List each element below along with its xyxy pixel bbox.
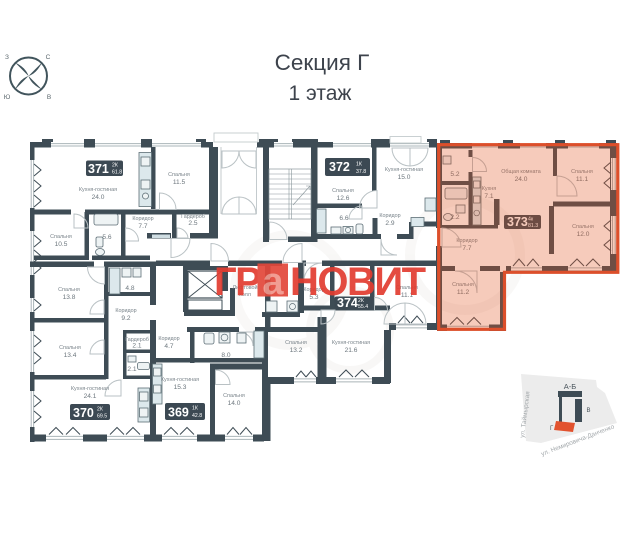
svg-text:14.0: 14.0 [228, 400, 241, 407]
svg-text:2.1: 2.1 [127, 366, 136, 373]
svg-text:13.8: 13.8 [63, 294, 76, 301]
svg-text:Спальня: Спальня [59, 345, 81, 351]
svg-text:Коридор: Коридор [132, 216, 153, 222]
svg-text:6.6: 6.6 [339, 215, 348, 222]
svg-text:15.0: 15.0 [398, 174, 411, 181]
svg-text:а: а [262, 261, 284, 303]
svg-text:НОВИТ: НОВИТ [290, 260, 426, 304]
svg-text:13.2: 13.2 [290, 347, 303, 354]
svg-text:Спальня: Спальня [223, 393, 245, 399]
svg-text:370: 370 [73, 406, 94, 420]
svg-text:11.5: 11.5 [173, 179, 186, 186]
svg-text:8.0: 8.0 [221, 352, 230, 359]
svg-text:12.6: 12.6 [337, 195, 350, 202]
svg-text:5.6: 5.6 [102, 234, 111, 241]
svg-text:В: В [587, 408, 591, 414]
svg-text:З: З [5, 54, 9, 61]
svg-text:2К: 2К [97, 407, 103, 413]
svg-text:15.3: 15.3 [174, 384, 187, 391]
svg-text:Коридор: Коридор [115, 308, 136, 314]
svg-text:С: С [46, 54, 51, 61]
svg-text:7.7: 7.7 [138, 223, 147, 230]
svg-text:2.5: 2.5 [188, 220, 197, 227]
svg-text:55.4: 55.4 [358, 304, 368, 310]
svg-text:А-Б: А-Б [564, 382, 577, 391]
svg-text:1 этаж: 1 этаж [289, 82, 352, 105]
svg-text:69.5: 69.5 [97, 414, 107, 420]
svg-text:371: 371 [88, 162, 109, 176]
svg-text:24.1: 24.1 [84, 393, 97, 400]
svg-text:372: 372 [329, 160, 350, 174]
svg-text:Кухня-гостиная: Кухня-гостиная [332, 340, 370, 346]
svg-text:Спальня: Спальня [50, 234, 72, 240]
svg-text:Ю: Ю [4, 94, 11, 101]
svg-text:13.4: 13.4 [64, 352, 77, 359]
svg-text:Кухня-гостиная: Кухня-гостиная [161, 377, 199, 383]
svg-text:61.8: 61.8 [112, 170, 122, 176]
svg-text:42.8: 42.8 [192, 413, 202, 419]
svg-text:Кухня-гостиная: Кухня-гостиная [71, 386, 109, 392]
svg-text:1К: 1К [192, 406, 198, 412]
svg-text:10.5: 10.5 [55, 241, 68, 248]
svg-text:Коридор: Коридор [379, 213, 400, 219]
svg-text:9.2: 9.2 [121, 315, 130, 322]
svg-text:37.8: 37.8 [356, 169, 366, 175]
svg-text:Секция Г: Секция Г [275, 50, 370, 75]
svg-text:369: 369 [168, 406, 189, 420]
svg-text:Коридор: Коридор [158, 336, 179, 342]
svg-text:Кухня-гостиная: Кухня-гостиная [79, 187, 117, 193]
svg-text:2К: 2К [112, 163, 118, 169]
svg-text:Спальня: Спальня [168, 172, 190, 178]
svg-text:ГР: ГР [214, 260, 261, 304]
svg-text:1К: 1К [356, 162, 362, 168]
svg-text:21.6: 21.6 [345, 347, 358, 354]
svg-text:2.9: 2.9 [385, 220, 394, 227]
svg-text:4.8: 4.8 [125, 285, 134, 292]
svg-text:Спальня: Спальня [332, 188, 354, 194]
svg-text:4.7: 4.7 [164, 343, 173, 350]
svg-text:2.1: 2.1 [132, 343, 141, 350]
svg-text:В: В [47, 94, 51, 101]
svg-text:24.0: 24.0 [92, 194, 105, 201]
svg-text:Спальня: Спальня [58, 287, 80, 293]
svg-text:Спальня: Спальня [285, 340, 307, 346]
svg-text:Кухня-гостиная: Кухня-гостиная [385, 167, 423, 173]
